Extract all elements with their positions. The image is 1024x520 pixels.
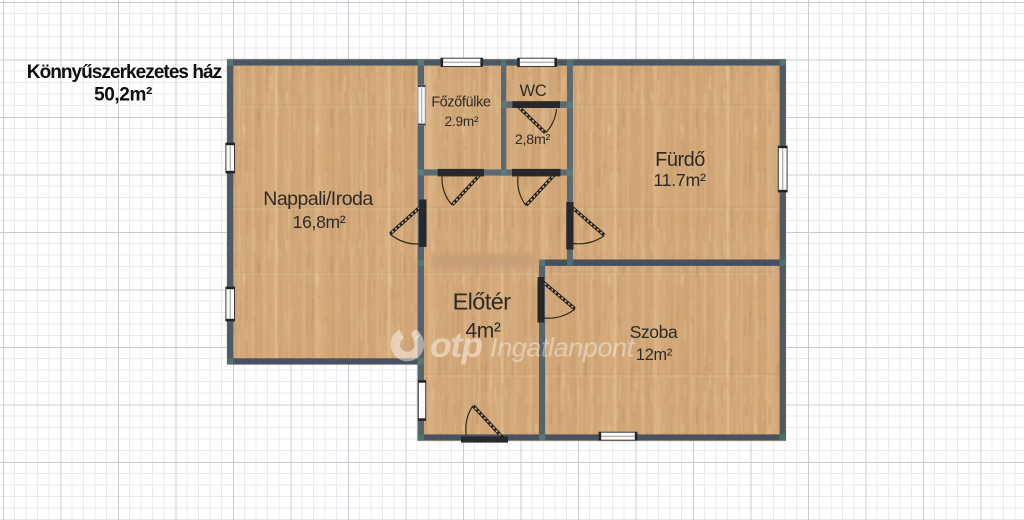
svg-text:12m²: 12m² [636, 346, 673, 364]
svg-text:Szoba: Szoba [630, 322, 678, 342]
svg-text:50,2m²: 50,2m² [94, 85, 152, 106]
svg-text:Könnyűszerkezetes ház: Könnyűszerkezetes ház [27, 62, 222, 83]
svg-text:16,8m²: 16,8m² [293, 212, 346, 232]
svg-text:11.7m²: 11.7m² [653, 170, 706, 190]
svg-text:Főzőfülke: Főzőfülke [431, 95, 491, 111]
svg-text:otp: otp [430, 325, 483, 365]
svg-text:Nappali/Iroda: Nappali/Iroda [263, 188, 373, 210]
svg-text:Ingatlanpont: Ingatlanpont [490, 333, 636, 363]
svg-text:WC: WC [520, 82, 547, 100]
svg-text:Fürdő: Fürdő [655, 149, 705, 171]
svg-text:Előtér: Előtér [453, 289, 512, 315]
svg-text:2,8m²: 2,8m² [515, 132, 551, 148]
svg-text:2.9m²: 2.9m² [445, 114, 479, 129]
